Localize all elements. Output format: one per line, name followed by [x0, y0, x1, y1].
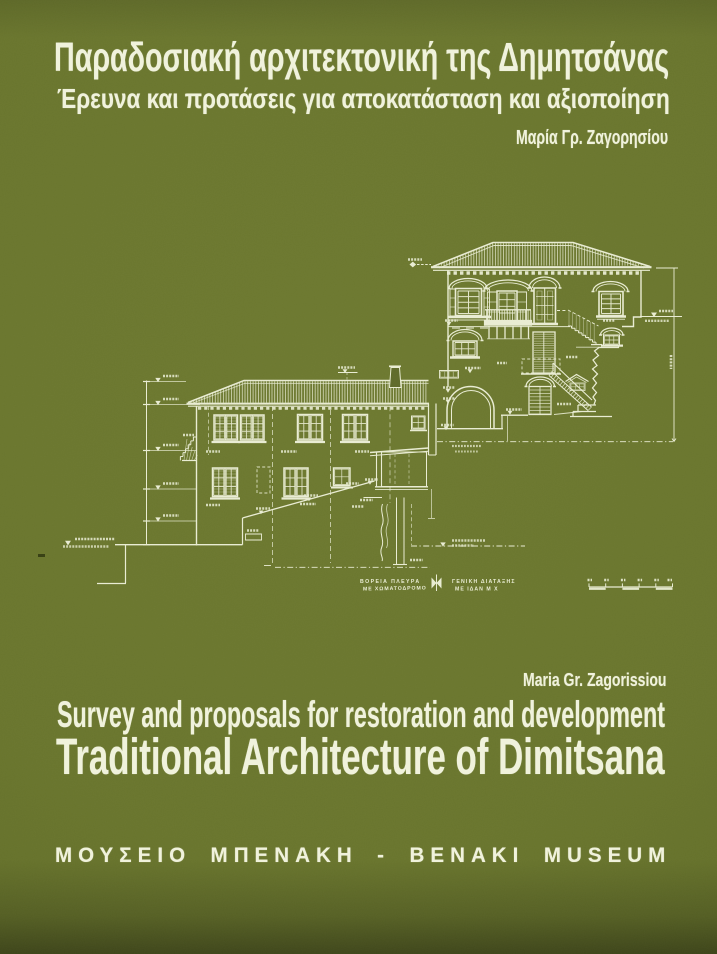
- svg-text:ΜΕ ΧΩΜΑΤΟΔΡΟΜΟ: ΜΕ ΧΩΜΑΤΟΔΡΟΜΟ: [363, 585, 427, 592]
- svg-text:ΓΕΝΙΚΗ ΔΙΑΤΑΞΗΣ: ΓΕΝΙΚΗ ΔΙΑΤΑΞΗΣ: [452, 579, 516, 585]
- svg-text:ΜΕ ΙΔΑΝ Μ Χ: ΜΕ ΙΔΑΝ Μ Χ: [455, 587, 499, 593]
- svg-text:ΒΟΡΕΙΑ ΠΛΕΥΡΑ: ΒΟΡΕΙΑ ΠΛΕΥΡΑ: [360, 579, 420, 585]
